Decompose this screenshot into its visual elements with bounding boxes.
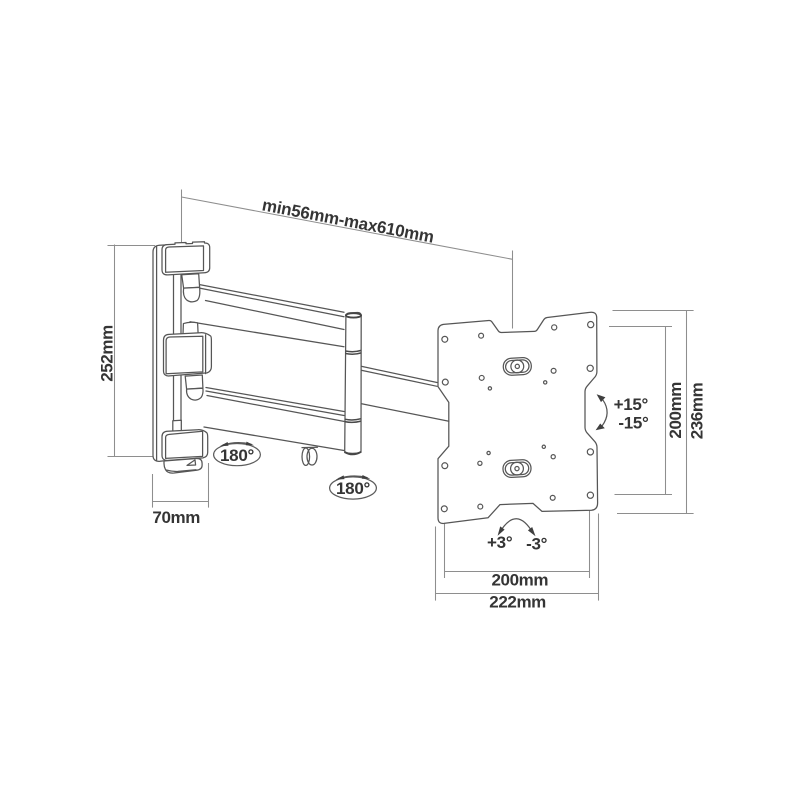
svg-text:+15°: +15° bbox=[614, 395, 649, 414]
svg-text:180°: 180° bbox=[220, 446, 254, 465]
svg-text:236mm: 236mm bbox=[687, 382, 706, 439]
svg-text:+3°: +3° bbox=[487, 533, 513, 552]
svg-text:200mm: 200mm bbox=[666, 382, 685, 439]
svg-text:-3°: -3° bbox=[526, 535, 548, 554]
svg-text:252mm: 252mm bbox=[97, 325, 116, 382]
svg-text:-15°: -15° bbox=[618, 413, 649, 432]
svg-text:200mm: 200mm bbox=[491, 571, 548, 590]
svg-text:180°: 180° bbox=[336, 479, 370, 498]
svg-text:222mm: 222mm bbox=[489, 593, 546, 612]
svg-text:70mm: 70mm bbox=[152, 508, 200, 527]
